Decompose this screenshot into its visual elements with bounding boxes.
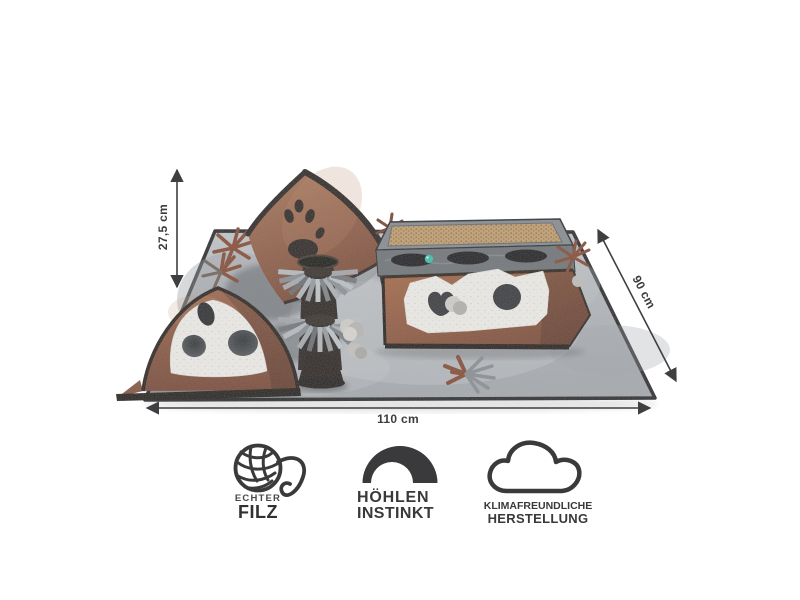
yarn-ball-icon — [236, 446, 305, 496]
cave-arch-icon — [363, 446, 438, 483]
width-dimension-label: 110 cm — [358, 412, 438, 426]
teal-ball-highlight — [426, 256, 428, 258]
feature-icons — [236, 443, 580, 495]
pom-pom — [572, 275, 584, 287]
cloud-icon — [490, 443, 580, 491]
cardboard-scratcher — [376, 219, 575, 276]
teal-ball — [425, 255, 433, 263]
badge-climate-friendly-label-line2: HERSTELLUNG — [477, 511, 599, 526]
white-felt-band — [404, 269, 549, 333]
badge-cave-instinct-label-line2: INSTINKT — [357, 505, 434, 523]
height-dimension-label: 27,5 cm — [156, 187, 170, 267]
product-infographic: 27,5 cm 110 cm 90 cm ECHTER FILZ HÖHLEN … — [0, 0, 800, 600]
cat-play-mat-set — [116, 152, 670, 412]
badge-real-felt-label-line2: FILZ — [208, 502, 308, 523]
tunnel-hole — [493, 284, 521, 310]
cardboard-insert — [388, 223, 562, 246]
cave-hole — [228, 330, 258, 356]
felt-tunnel — [383, 269, 590, 347]
